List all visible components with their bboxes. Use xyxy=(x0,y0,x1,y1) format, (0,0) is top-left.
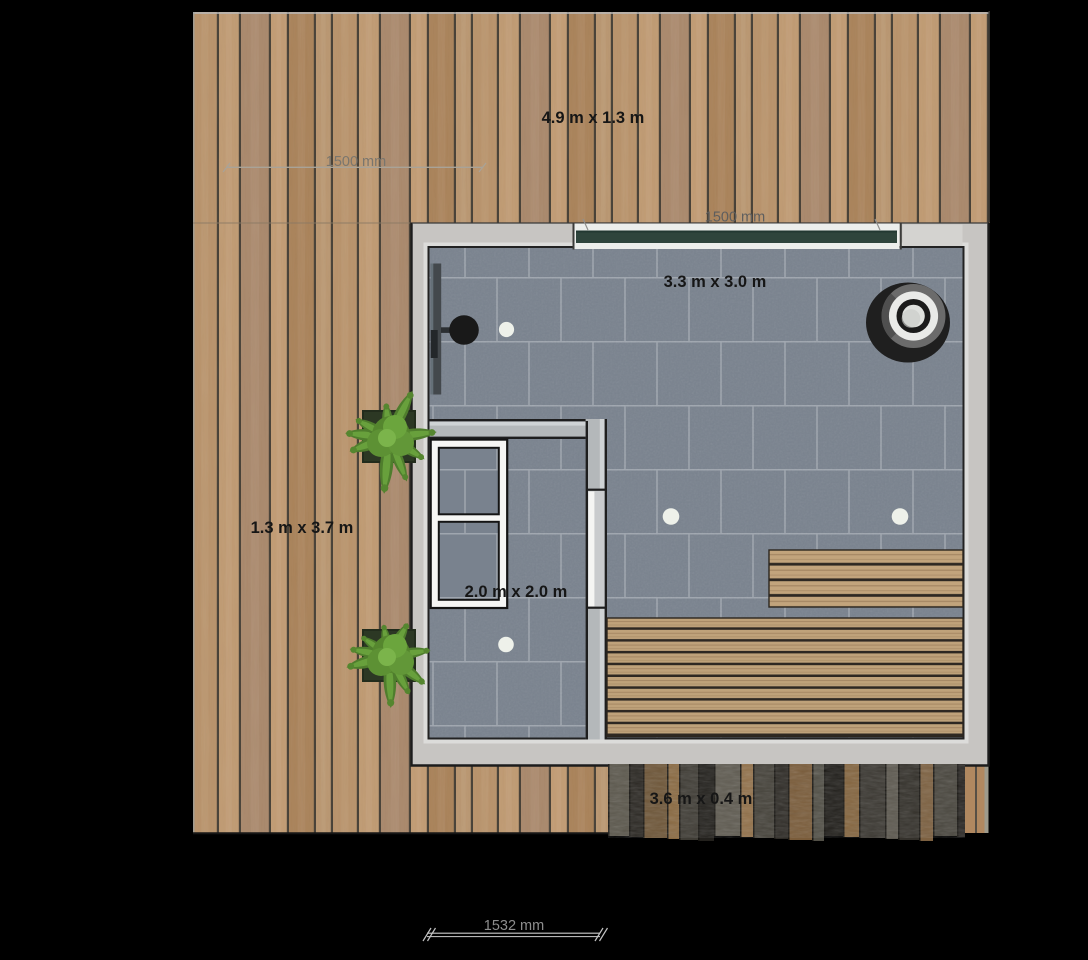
svg-text:1500 mm: 1500 mm xyxy=(326,154,386,170)
svg-text:2.0 m x 2.0 m: 2.0 m x 2.0 m xyxy=(465,583,568,601)
svg-text:1500 mm: 1500 mm xyxy=(705,210,765,226)
svg-text:3.6 m x 0.4 m: 3.6 m x 0.4 m xyxy=(650,790,753,808)
svg-text:1532 mm: 1532 mm xyxy=(484,918,544,934)
svg-text:1.3 m x 3.7 m: 1.3 m x 3.7 m xyxy=(251,519,354,537)
svg-text:3.3 m x 3.0 m: 3.3 m x 3.0 m xyxy=(664,273,767,291)
svg-text:4.9 m x 1.3 m: 4.9 m x 1.3 m xyxy=(542,109,645,127)
